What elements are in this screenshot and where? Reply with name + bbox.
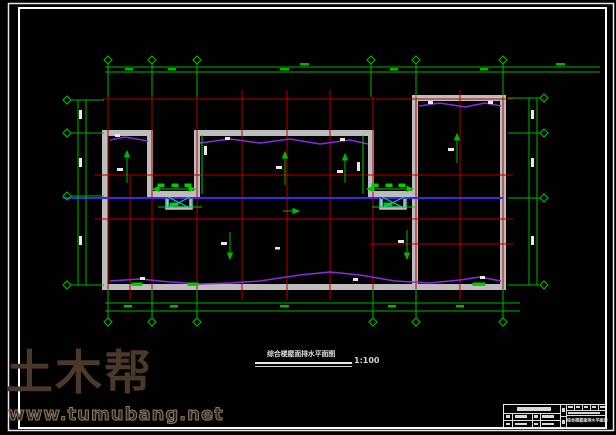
title-block-char — [562, 408, 565, 412]
cad-screenshot: 综合楼屋面排水平面图 1:100 土木帮 www.tumubang.net 综合… — [0, 0, 616, 435]
title-block-label — [534, 415, 538, 418]
title-block-rule — [566, 415, 607, 416]
title-block-value — [515, 415, 527, 418]
title-block-rule — [566, 410, 607, 411]
stair-core-details — [132, 135, 485, 286]
title-block-char — [562, 420, 565, 424]
watermark-brand: 土木帮 — [6, 350, 153, 397]
title-block-value — [542, 423, 554, 426]
title-block-rule — [540, 413, 541, 427]
title-block-mini-cell — [576, 406, 580, 408]
title-block-label — [506, 423, 510, 426]
title-block-rule — [574, 405, 575, 410]
title-block: 综合楼屋面排水平面图 — [503, 404, 606, 428]
title-block-rule — [532, 413, 533, 427]
title-block-value — [542, 415, 554, 418]
building-walls — [105, 98, 503, 287]
title-block-rule — [560, 416, 567, 417]
title-block-rule — [582, 405, 583, 410]
title-block-mini-cell — [584, 406, 588, 408]
title-block-value — [515, 423, 527, 426]
watermark-url: www.tumubang.net — [8, 404, 224, 425]
title-block-label — [506, 415, 510, 418]
title-underline-thick — [255, 362, 352, 364]
title-block-rule — [512, 413, 513, 427]
institute-name-text — [517, 407, 551, 411]
title-underline-thin — [255, 366, 352, 367]
title-block-rule — [598, 405, 599, 410]
drawing-title: 综合楼屋面排水平面图 — [267, 349, 357, 359]
title-block-label — [534, 423, 538, 426]
title-block-mini-cell — [568, 406, 573, 408]
title-block-subtitle — [568, 412, 600, 414]
title-block-rule — [590, 405, 591, 410]
title-block-drawing-title: 综合楼屋面排水平面图 — [567, 418, 602, 423]
title-block-mini-cell — [592, 406, 596, 408]
drawing-scale: 1:100 — [354, 356, 379, 365]
title-block-mini-cell — [600, 406, 605, 408]
